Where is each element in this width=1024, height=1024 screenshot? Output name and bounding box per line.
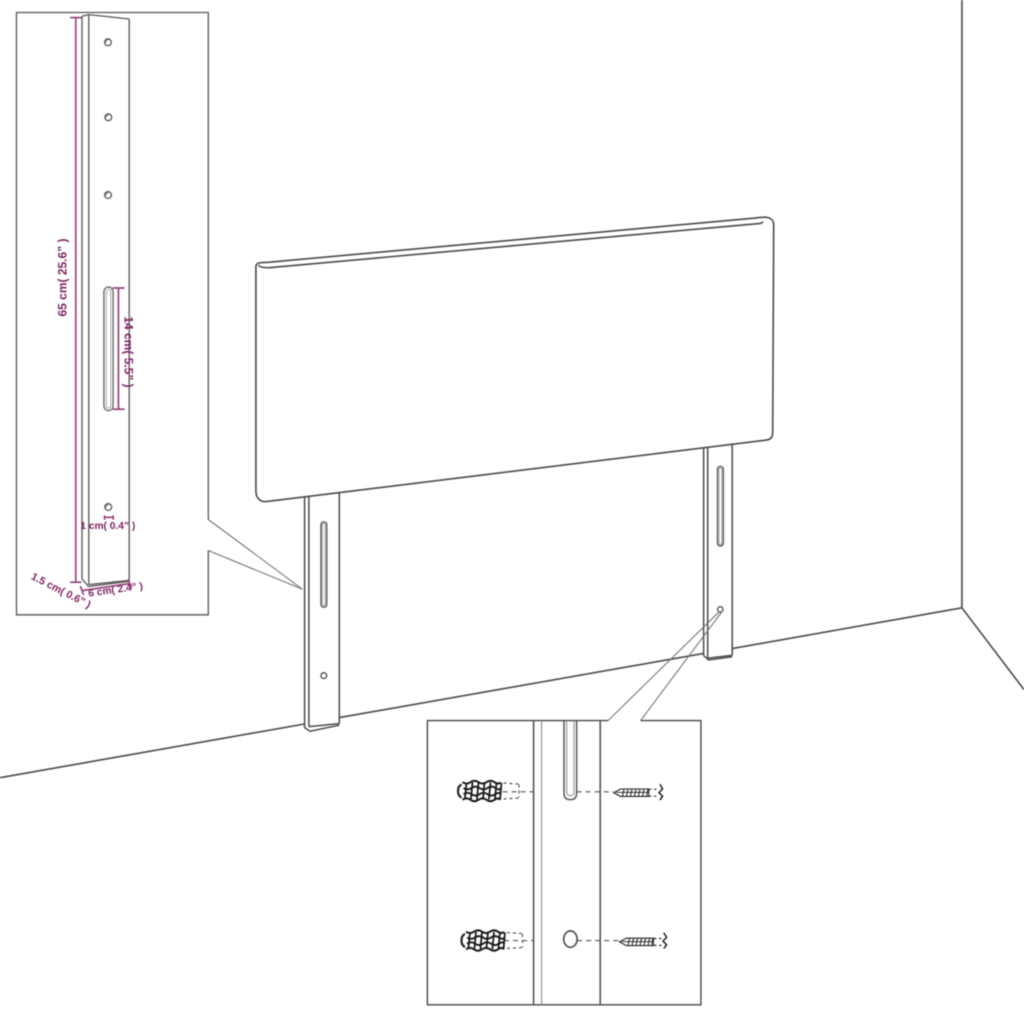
svg-text:14 cm( 5.5” ): 14 cm( 5.5” ): [122, 316, 136, 387]
svg-text:1 cm( 0.4” ): 1 cm( 0.4” ): [80, 521, 135, 532]
svg-text:65 cm( 25.6” ): 65 cm( 25.6” ): [56, 238, 70, 316]
